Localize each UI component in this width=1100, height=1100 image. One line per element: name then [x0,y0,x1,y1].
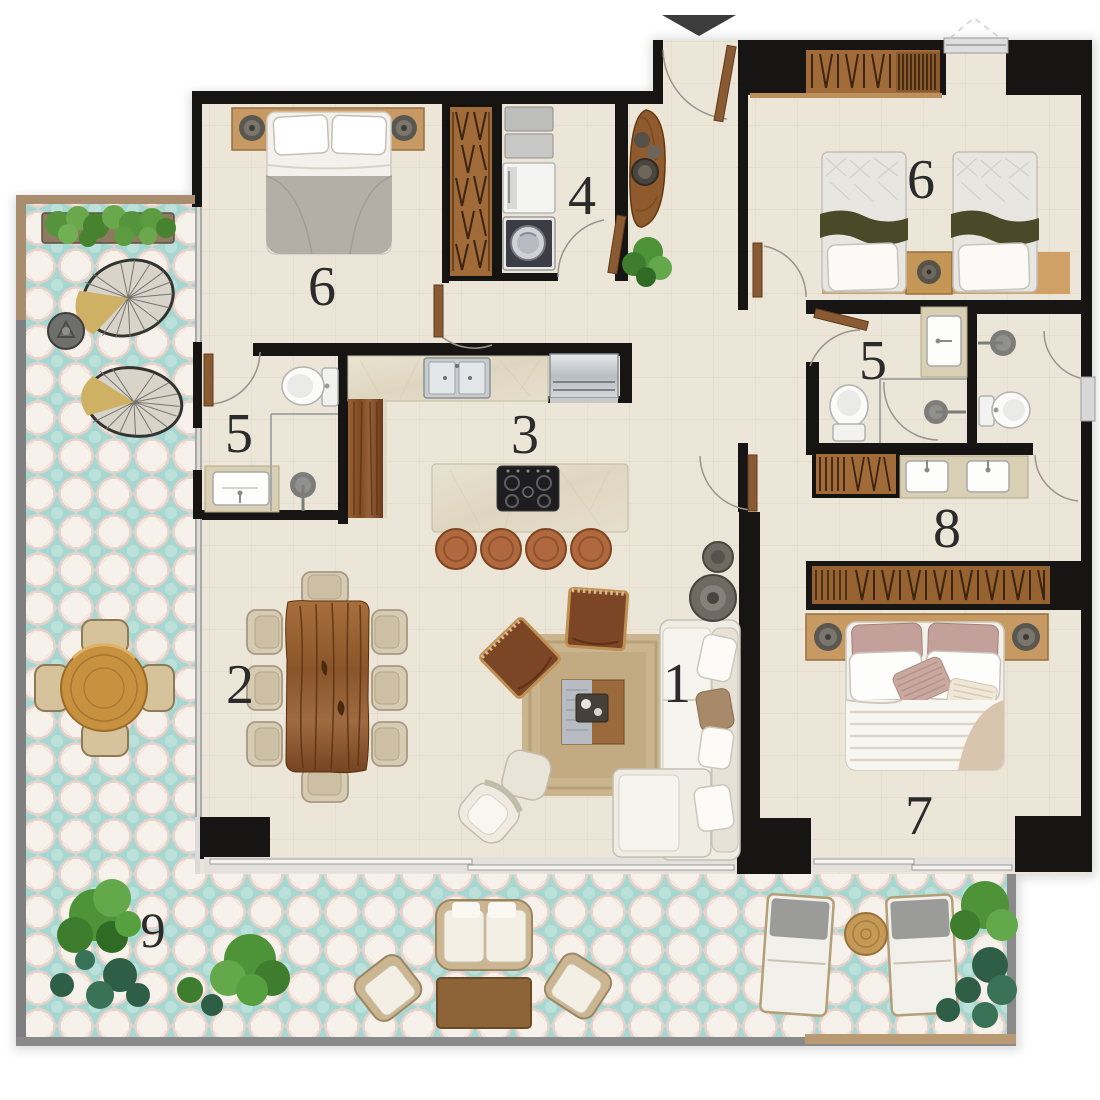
svg-text:5: 5 [859,330,887,392]
svg-text:5: 5 [225,403,253,465]
svg-text:9: 9 [141,902,166,958]
svg-text:6: 6 [308,256,336,318]
svg-text:2: 2 [226,654,254,716]
svg-text:8: 8 [933,498,961,560]
svg-text:1: 1 [663,653,691,715]
svg-text:3: 3 [511,404,539,466]
svg-text:4: 4 [568,165,596,227]
svg-text:6: 6 [907,149,935,211]
svg-text:7: 7 [905,785,933,847]
